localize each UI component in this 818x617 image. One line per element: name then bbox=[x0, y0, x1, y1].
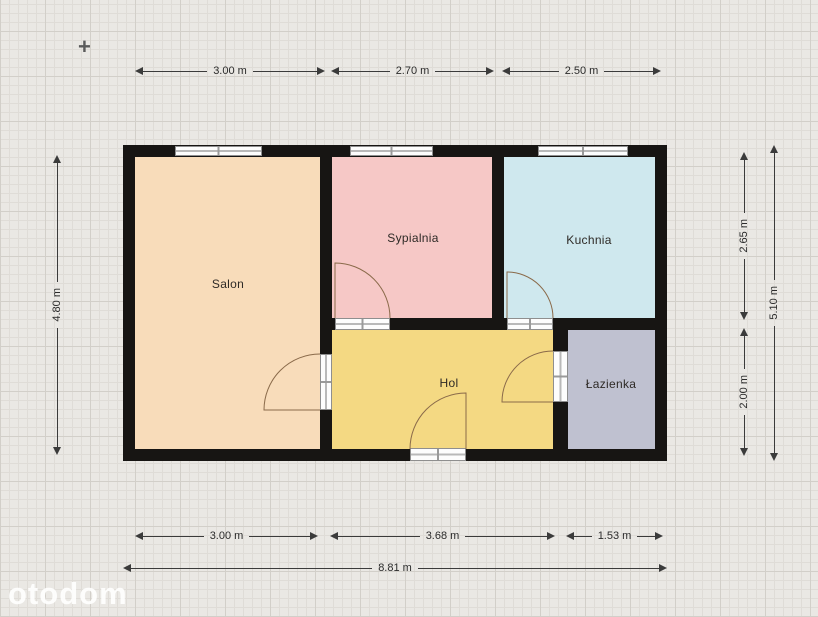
door-opening-hol-lazienka bbox=[553, 351, 568, 402]
otodom-watermark: otodom bbox=[8, 576, 128, 612]
dim-label: 2.00 m bbox=[738, 369, 750, 415]
window-sypialnia bbox=[350, 146, 433, 156]
dim-label: 1.53 m bbox=[592, 530, 638, 542]
dim-label: 2.50 m bbox=[559, 65, 605, 77]
floor-plan-canvas: + Salon Sypialnia Kuchnia Hol Łazienka 3… bbox=[0, 0, 818, 617]
dim-label: 8.81 m bbox=[372, 562, 418, 574]
door-opening-kuchnia-hol bbox=[507, 318, 553, 330]
dim-right-kuchnia: 2.65 m bbox=[737, 152, 751, 320]
dim-label: 2.65 m bbox=[738, 213, 750, 259]
door-opening-sypialnia-hol bbox=[335, 318, 390, 330]
dim-label: 3.00 m bbox=[207, 65, 253, 77]
dim-label: 5.10 m bbox=[768, 280, 780, 326]
room-label-kuchnia: Kuchnia bbox=[566, 233, 611, 247]
window-salon bbox=[175, 146, 262, 156]
dim-bottom-salon: 3.00 m bbox=[135, 530, 318, 542]
dim-bottom-hol: 3.68 m bbox=[330, 530, 555, 542]
door-opening-salon-hol bbox=[320, 354, 332, 410]
plus-marker-icon: + bbox=[78, 36, 91, 58]
door-opening-entrance bbox=[410, 448, 466, 461]
room-label-salon: Salon bbox=[212, 277, 244, 291]
dim-top-salon: 3.00 m bbox=[135, 65, 325, 77]
room-label-sypialnia: Sypialnia bbox=[387, 231, 438, 245]
dim-bottom-lazienka: 1.53 m bbox=[566, 530, 663, 542]
dim-bottom-total: 8.81 m bbox=[123, 562, 667, 574]
dim-right-total: 5.10 m bbox=[767, 145, 781, 461]
dim-label: 2.70 m bbox=[390, 65, 436, 77]
window-kuchnia bbox=[538, 146, 628, 156]
room-label-hol: Hol bbox=[440, 376, 459, 390]
dim-label: 3.00 m bbox=[204, 530, 250, 542]
dim-label: 3.68 m bbox=[420, 530, 466, 542]
dim-label: 4.80 m bbox=[51, 282, 63, 328]
room-label-lazienka: Łazienka bbox=[586, 377, 636, 391]
dim-top-kuchnia: 2.50 m bbox=[502, 65, 661, 77]
dim-top-sypialnia: 2.70 m bbox=[331, 65, 494, 77]
dim-left-height: 4.80 m bbox=[50, 155, 64, 455]
room-salon bbox=[135, 157, 320, 449]
dim-right-lazienka: 2.00 m bbox=[737, 328, 751, 456]
